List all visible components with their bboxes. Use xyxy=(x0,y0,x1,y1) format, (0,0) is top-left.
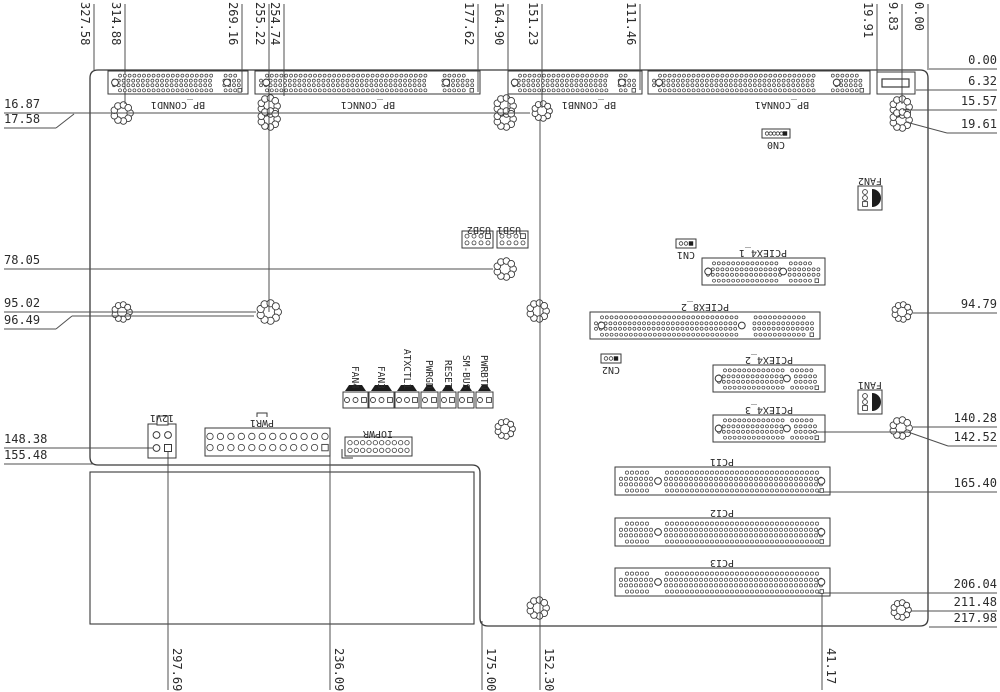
mounting-hole xyxy=(891,600,911,621)
dimension-label-right: 6.32 xyxy=(927,75,997,88)
pciex4-2-label: PCIEX4_2 xyxy=(745,354,793,364)
cn2-label: CN2 xyxy=(602,364,620,374)
dimension-label-bottom: 175.00 xyxy=(484,648,497,691)
conn-top-right-connector xyxy=(877,72,915,94)
mounting-hole xyxy=(892,302,912,323)
dimension-label-top: 177.62 xyxy=(462,2,475,45)
pci2-label: PCI2 xyxy=(710,507,734,517)
dimension-label-bottom: 41.17 xyxy=(824,648,837,684)
dimension-label-top: 327.58 xyxy=(78,2,91,45)
mounting-hole xyxy=(890,417,912,440)
dimension-label-right: 165.40 xyxy=(927,477,997,490)
fan2-connector xyxy=(858,186,882,210)
dimension-label-bottom: 152.30 xyxy=(542,648,555,691)
dimension-label-top: 269.16 xyxy=(226,2,239,45)
pciex4-2-connector xyxy=(713,365,825,392)
psu-cutout-rect xyxy=(90,472,474,624)
reset-label: RESET xyxy=(441,331,454,389)
12v1-label: 12V1 xyxy=(150,412,174,422)
pciex4-1-label: PCIEX4_1 xyxy=(739,247,787,257)
mounting-hole xyxy=(527,597,549,620)
bp-connd1-connector xyxy=(108,71,248,94)
dimension-label-top: 254.74 xyxy=(268,2,281,45)
fan2-label: FAN2 xyxy=(858,175,882,185)
dimension-label-left: 16.87 xyxy=(4,98,40,111)
mounting-hole xyxy=(494,258,516,281)
mounting-hole xyxy=(527,300,549,323)
dimension-label-left: 78.05 xyxy=(4,254,40,267)
pwrbtn-label: PWRBTN xyxy=(477,331,490,389)
pwr1-label: PWR1 xyxy=(250,417,274,427)
cn0-connector xyxy=(762,129,790,138)
bp-connb1-connector xyxy=(508,71,642,94)
iopwr-connector xyxy=(342,437,412,458)
bp-connb1-label: BP_CONNB1 xyxy=(562,99,616,109)
dimension-label-top: 151.23 xyxy=(526,2,539,45)
pcb-dimension-drawing: { "drawing_title": "backplane-board-dime… xyxy=(0,0,1000,692)
fan3-label: FAN3 xyxy=(374,331,387,389)
usb-label-label: USB1 USB2 xyxy=(467,224,521,234)
dimension-label-left: 96.49 xyxy=(4,314,40,327)
dimension-label-top: 19.91 xyxy=(861,2,874,38)
dimension-label-top: 111.46 xyxy=(624,2,637,45)
dimension-label-bottom: 297.69 xyxy=(170,648,183,691)
dimension-label-left: 95.02 xyxy=(4,297,40,310)
pci1-label: PCI1 xyxy=(710,456,734,466)
dimension-label-right: 217.98 xyxy=(927,612,997,625)
dimension-label-top: 9.83 xyxy=(886,2,899,31)
dimension-label-right: 19.61 xyxy=(927,118,997,131)
atxctl1-label: ATXCTL1 xyxy=(400,331,413,389)
pciex8-2-connector xyxy=(590,312,820,339)
cn2-connector xyxy=(601,354,621,363)
pci3-connector xyxy=(615,568,830,596)
dimension-label-right: 94.79 xyxy=(927,298,997,311)
bp-conna1-connector xyxy=(648,71,870,94)
fan1-label: FAN1 xyxy=(858,379,882,389)
dimension-label-left: 148.38 xyxy=(4,433,47,446)
dimension-label-right: 15.57 xyxy=(927,95,997,108)
fan1-connector xyxy=(858,390,882,414)
pciex8-2-label: PCIEX8_2 xyxy=(681,301,729,311)
dimension-line xyxy=(56,316,72,329)
iopwr-label: IOPWR xyxy=(363,428,393,438)
dimension-label-top: 255.22 xyxy=(253,2,266,45)
dimension-label-right: 211.48 xyxy=(927,596,997,609)
dimension-label-top: 0.00 xyxy=(912,2,925,31)
pciex4-3-label: PCIEX4_3 xyxy=(745,404,793,414)
pci3-label: PCI3 xyxy=(710,557,734,567)
mounting-hole xyxy=(494,108,516,131)
dimension-label-right: 0.00 xyxy=(927,54,997,67)
pciex4-3-connector xyxy=(713,415,825,442)
bp-connc1-connector xyxy=(255,71,480,94)
dimension-label-right: 142.52 xyxy=(927,431,997,444)
fan4-label: FAN4 xyxy=(348,331,361,389)
pci2-connector xyxy=(615,518,830,546)
bp-connd1-label: BP_CONND1 xyxy=(151,99,205,109)
pciex4-1-connector xyxy=(702,258,825,285)
dimension-label-bottom: 236.09 xyxy=(332,648,345,691)
mounting-hole xyxy=(890,109,912,132)
dimension-label-left: 155.48 xyxy=(4,449,47,462)
dimension-label-top: 314.88 xyxy=(109,2,122,45)
mounting-hole xyxy=(495,419,515,440)
sm-bus-label: SM-BUS xyxy=(459,331,472,389)
dimension-label-top: 164.90 xyxy=(492,2,505,45)
pci1-connector xyxy=(615,467,830,495)
dimension-line xyxy=(56,114,74,128)
dimension-label-right: 140.28 xyxy=(927,412,997,425)
pwrgd-label: PWRGD xyxy=(422,331,435,389)
dimension-label-left: 17.58 xyxy=(4,113,40,126)
dimension-label-right: 206.04 xyxy=(927,578,997,591)
cn0-label: CN0 xyxy=(767,139,785,149)
bp-connc1-label: BP_CONNC1 xyxy=(341,99,395,109)
cn1-label: CN1 xyxy=(677,249,695,259)
cn1-connector xyxy=(676,239,696,248)
bp-conna1-label: BP_CONNA1 xyxy=(755,99,809,109)
